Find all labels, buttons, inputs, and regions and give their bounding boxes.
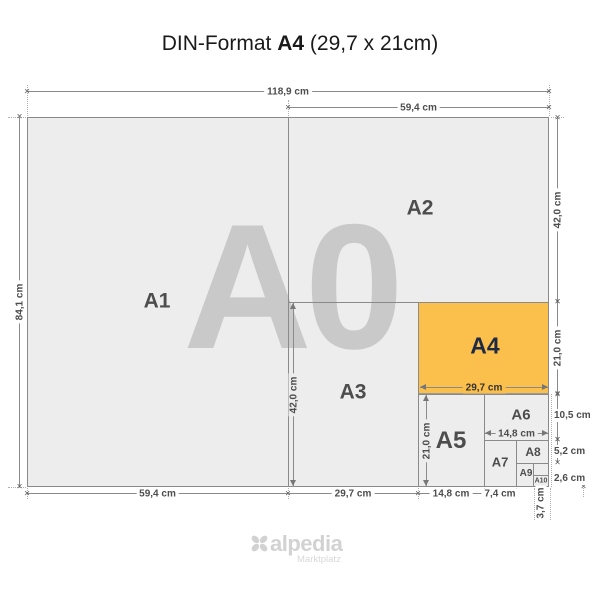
dim-a3-height-inner: 42,0 cm <box>289 303 298 486</box>
dim-half-width-top: × × 59,4 cm <box>288 103 549 112</box>
paper-label-a2: A2 <box>407 198 434 219</box>
dim-a5-height-inner: 21,0 cm <box>422 395 431 486</box>
paper-label-a5: A5 <box>436 429 467 453</box>
title-prefix: DIN-Format <box>162 32 272 55</box>
dim-a1-width-bottom: × × 59,4 cm <box>27 489 288 498</box>
paper-label-a4: A4 <box>470 335 499 358</box>
dim-a2-height: × × 42,0 cm <box>553 118 562 302</box>
title-emphasis: A4 <box>277 32 304 55</box>
dim-a6-width-inner: 14,8 cm <box>485 429 548 438</box>
arrow-up <box>423 395 429 401</box>
dim-a4-width-inner: 29,7 cm <box>420 383 548 392</box>
paper-label-a7: A7 <box>492 456 509 469</box>
paper-label-a10: A10 <box>535 478 548 485</box>
dim-end-mark: × <box>553 114 562 123</box>
arrow-left <box>485 430 491 436</box>
dim-end-mark: × <box>284 103 293 112</box>
dim-label-a6-height: 10,5 cm <box>552 409 593 422</box>
arrow-right <box>542 430 548 436</box>
dim-end-mark: × <box>23 489 32 498</box>
dim-end-mark: × <box>553 459 562 468</box>
title-suffix: (29,7 x 21cm) <box>310 32 438 55</box>
dim-end-mark: × <box>545 103 554 112</box>
dim-a4-height: × × 21,0 cm <box>553 302 562 394</box>
dim-label: 42,0 cm <box>552 189 563 232</box>
clover-petals-icon <box>250 534 269 558</box>
dim-label: 84,1 cm <box>14 281 25 324</box>
dim-label-a10-width: 3,7 cm <box>536 485 547 520</box>
dim-total-width: × × 118,9 cm <box>27 87 549 96</box>
dim-label: 21,0 cm <box>552 327 563 370</box>
dim-a3-width-bottom: × 29,7 cm <box>288 489 418 498</box>
dim-end-mark: × <box>553 436 562 445</box>
dim-total-height: × × 84,1 cm <box>15 117 24 487</box>
arrow-down <box>290 480 296 486</box>
paper-label-a1: A1 <box>144 291 171 312</box>
dim-end-mark: × <box>23 87 32 96</box>
dim-label: 14,8 cm <box>495 428 538 439</box>
page-title: DIN-Format A4 (29,7 x 21cm) <box>0 32 600 56</box>
arrow-up <box>290 303 296 309</box>
paper-label-a8: A8 <box>525 446 540 458</box>
extension-line <box>550 488 551 520</box>
dim-end-mark: × <box>15 113 24 122</box>
dim-label: 21,0 cm <box>421 419 432 462</box>
dim-a5-width-bottom: × 14,8 cm <box>418 489 484 498</box>
din-format-diagram: DIN-Format A4 (29,7 x 21cm) A0 A1 A2 A3 … <box>0 0 600 600</box>
dim-end-mark: × <box>553 391 562 400</box>
arrow-left <box>420 384 426 390</box>
arrow-right <box>542 384 548 390</box>
dim-label: 29,7 cm <box>463 382 506 393</box>
dim-label: 42,0 cm <box>288 373 299 416</box>
dim-label-a8-height: 5,2 cm <box>552 445 587 458</box>
dim-label: 59,4 cm <box>136 488 179 499</box>
logo-tagline: Marktplatz <box>297 554 341 565</box>
paper-label-a9: A9 <box>520 469 533 479</box>
paper-label-a6: A6 <box>511 408 530 423</box>
dim-label: 14,8 cm <box>430 488 473 499</box>
dim-label: 59,4 cm <box>397 102 440 113</box>
dim-label: 29,7 cm <box>332 488 375 499</box>
dim-label: 7,4 cm <box>481 488 518 499</box>
arrow-down <box>423 480 429 486</box>
dim-end-mark: × <box>553 298 562 307</box>
dim-a7-width-bottom: × 7,4 cm <box>484 489 516 498</box>
dim-label-a10-height: 2,6 cm <box>552 472 587 485</box>
dim-label: 118,9 cm <box>264 86 312 97</box>
paper-label-a3: A3 <box>340 382 367 403</box>
dim-end-mark: × <box>545 87 554 96</box>
